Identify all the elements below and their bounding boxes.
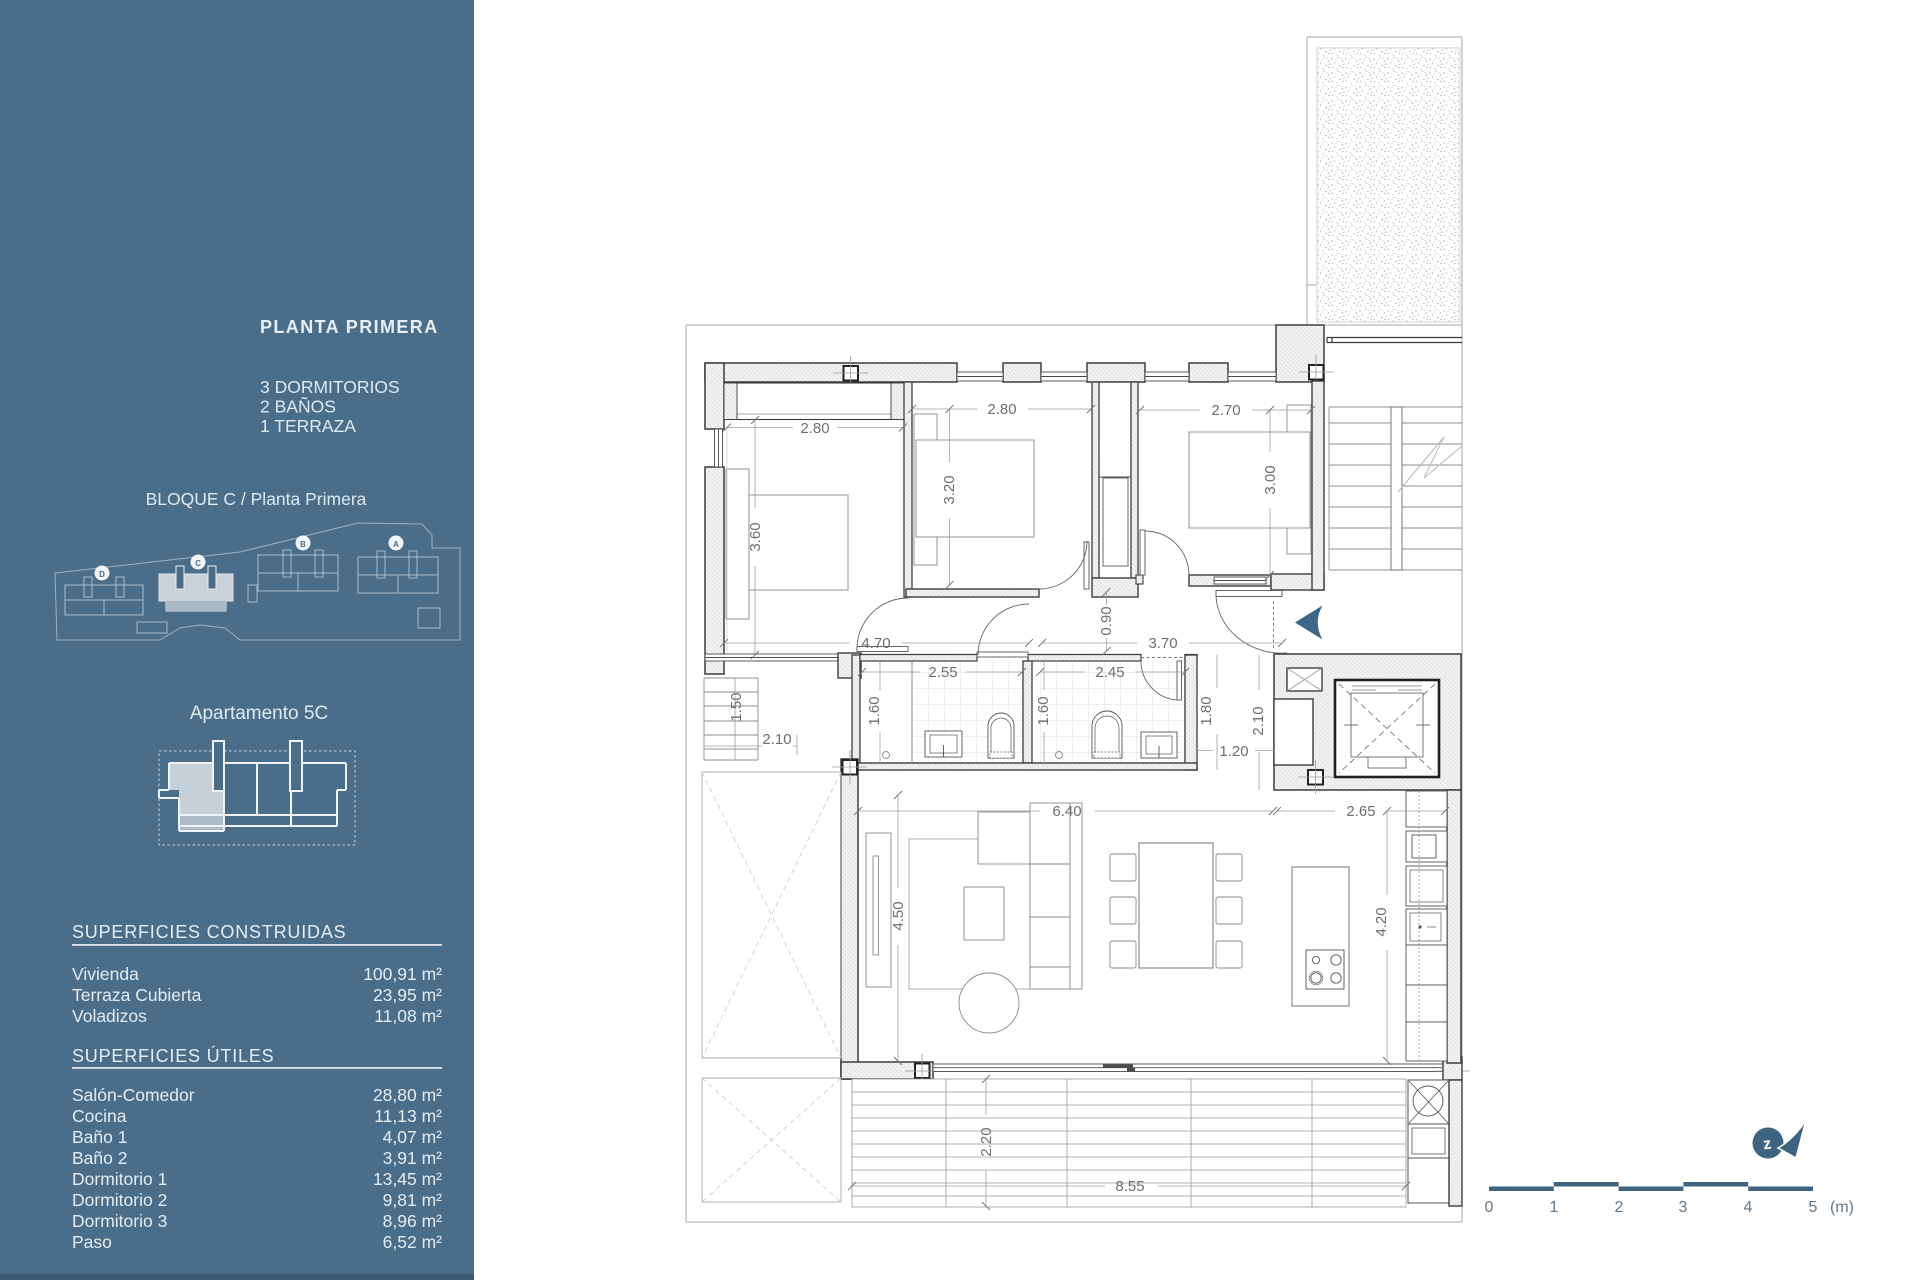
svg-text:1.50: 1.50 <box>728 692 745 721</box>
svg-text:3.00: 3.00 <box>1262 465 1279 494</box>
svg-text:B: B <box>300 540 306 549</box>
svg-text:2.55: 2.55 <box>928 664 957 681</box>
svg-text:SUPERFICIES ÚTILES: SUPERFICIES ÚTILES <box>72 1045 274 1066</box>
svg-text:4.50: 4.50 <box>890 901 907 930</box>
svg-text:6.40: 6.40 <box>1052 803 1081 820</box>
svg-text:6,52 m²: 6,52 m² <box>383 1232 442 1252</box>
svg-text:Vivienda: Vivienda <box>72 964 139 984</box>
svg-text:11,13 m²: 11,13 m² <box>374 1106 442 1126</box>
svg-text:8,96 m²: 8,96 m² <box>383 1211 442 1231</box>
svg-text:Paso: Paso <box>72 1232 112 1252</box>
svg-text:4.20: 4.20 <box>1373 907 1390 936</box>
svg-text:4: 4 <box>1744 1199 1753 1216</box>
svg-text:2.70: 2.70 <box>1211 402 1240 419</box>
svg-text:0: 0 <box>1485 1199 1494 1216</box>
svg-text:2.10: 2.10 <box>762 731 791 748</box>
svg-text:1.80: 1.80 <box>1198 696 1215 725</box>
svg-text:1: 1 <box>1550 1199 1559 1216</box>
svg-text:Salón-Comedor: Salón-Comedor <box>72 1085 195 1105</box>
svg-text:A: A <box>393 540 399 549</box>
svg-text:Baño 1: Baño 1 <box>72 1127 127 1147</box>
svg-text:2.65: 2.65 <box>1346 803 1375 820</box>
svg-text:1.60: 1.60 <box>866 696 883 725</box>
svg-text:PLANTA PRIMERA: PLANTA PRIMERA <box>260 317 439 337</box>
svg-text:2.80: 2.80 <box>987 401 1016 418</box>
svg-text:1 TERRAZA: 1 TERRAZA <box>260 416 356 436</box>
svg-text:8.55: 8.55 <box>1115 1178 1144 1195</box>
svg-text:Cocina: Cocina <box>72 1106 127 1126</box>
svg-text:D: D <box>99 570 105 579</box>
svg-text:Dormitorio 3: Dormitorio 3 <box>72 1211 167 1231</box>
svg-text:23,95 m²: 23,95 m² <box>373 985 442 1005</box>
svg-text:3: 3 <box>1679 1199 1688 1216</box>
svg-text:C: C <box>195 559 201 568</box>
svg-text:3.20: 3.20 <box>941 475 958 504</box>
svg-text:1.60: 1.60 <box>1035 696 1052 725</box>
svg-text:3 DORMITORIOS: 3 DORMITORIOS <box>260 377 400 397</box>
svg-text:2.45: 2.45 <box>1095 664 1124 681</box>
svg-text:100,91 m²: 100,91 m² <box>363 964 442 984</box>
svg-text:Terraza Cubierta: Terraza Cubierta <box>72 985 202 1005</box>
svg-text:3.70: 3.70 <box>1148 635 1177 652</box>
svg-text:0.90: 0.90 <box>1098 606 1115 635</box>
svg-text:28,80 m²: 28,80 m² <box>373 1085 442 1105</box>
svg-text:1.20: 1.20 <box>1219 743 1248 760</box>
svg-text:3.60: 3.60 <box>747 522 764 551</box>
svg-text:4,07 m²: 4,07 m² <box>383 1127 442 1147</box>
svg-text:2.10: 2.10 <box>1250 706 1267 735</box>
svg-text:9,81 m²: 9,81 m² <box>383 1190 442 1210</box>
svg-text:5: 5 <box>1809 1199 1818 1216</box>
svg-text:13,45 m²: 13,45 m² <box>373 1169 442 1189</box>
svg-text:(m): (m) <box>1830 1199 1854 1216</box>
svg-text:2: 2 <box>1615 1199 1624 1216</box>
svg-text:Dormitorio 2: Dormitorio 2 <box>72 1190 167 1210</box>
svg-text:Voladizos: Voladizos <box>72 1006 147 1026</box>
svg-text:SUPERFICIES CONSTRUIDAS: SUPERFICIES CONSTRUIDAS <box>72 922 346 942</box>
svg-text:2.20: 2.20 <box>978 1127 995 1156</box>
svg-text:Dormitorio 1: Dormitorio 1 <box>72 1169 167 1189</box>
svg-text:11,08 m²: 11,08 m² <box>374 1006 442 1026</box>
svg-text:BLOQUE C / Planta Primera: BLOQUE C / Planta Primera <box>146 489 367 509</box>
svg-text:2.80: 2.80 <box>800 420 829 437</box>
svg-text:Apartamento 5C: Apartamento 5C <box>190 703 328 724</box>
svg-text:2 BAÑOS: 2 BAÑOS <box>260 396 336 417</box>
svg-text:3,91 m²: 3,91 m² <box>383 1148 442 1168</box>
svg-text:Baño 2: Baño 2 <box>72 1148 127 1168</box>
svg-text:4.70: 4.70 <box>861 635 890 652</box>
